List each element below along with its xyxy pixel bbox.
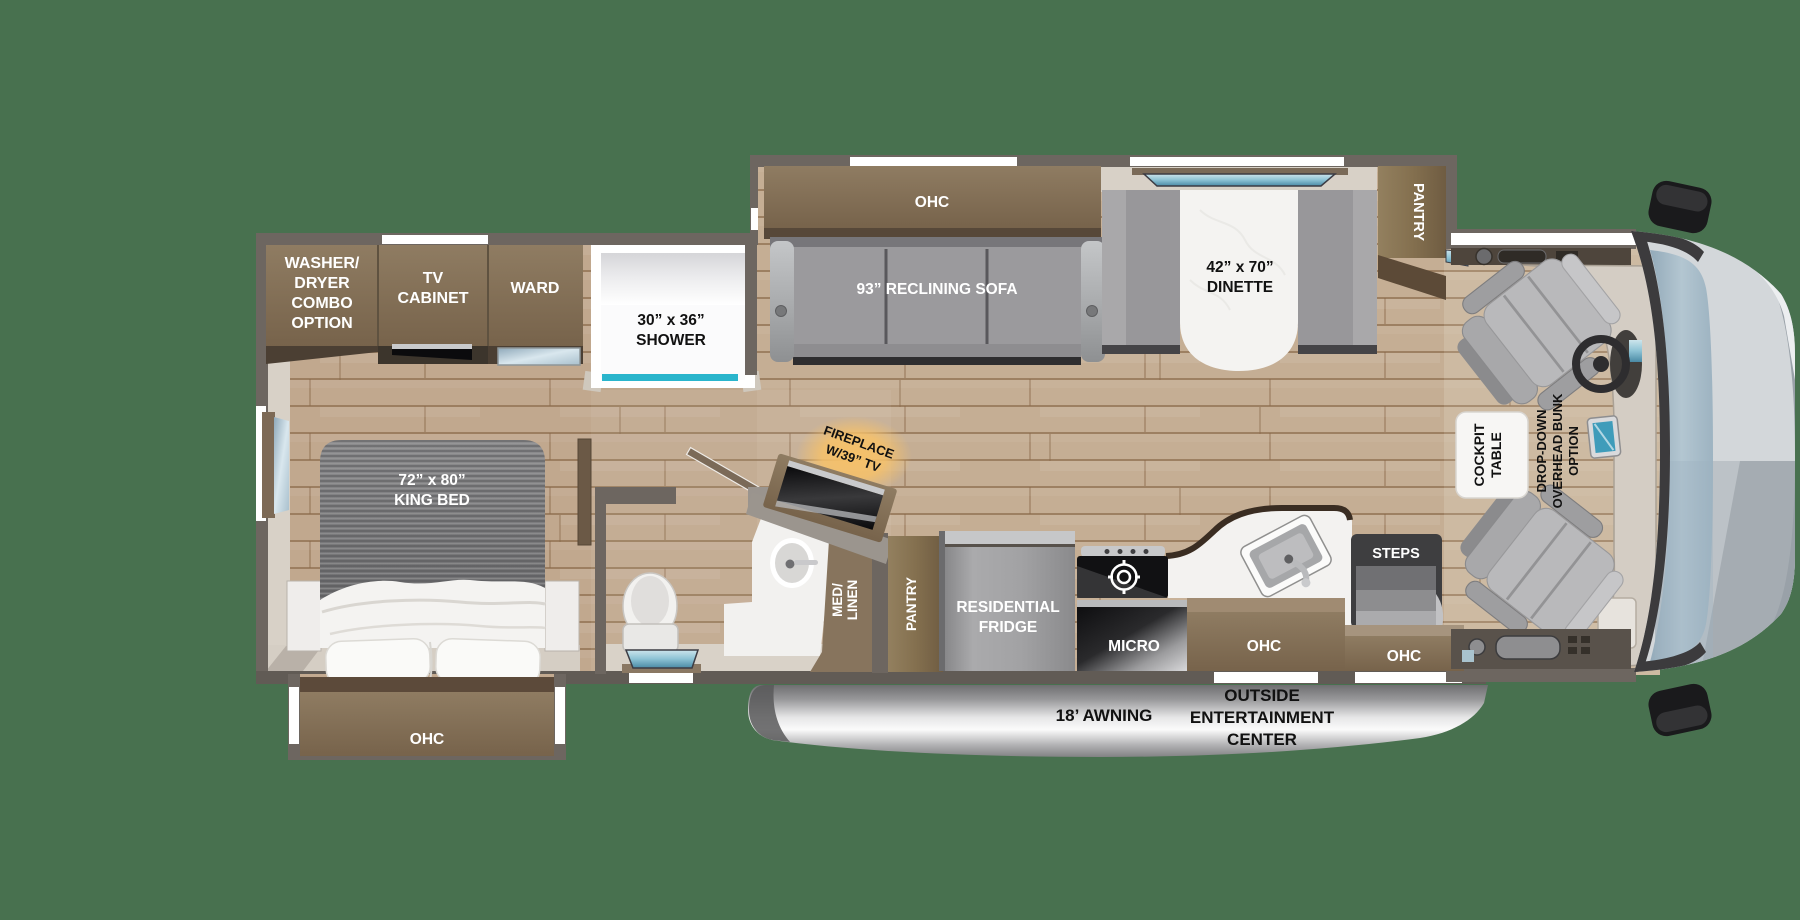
svg-text:KING BED: KING BED — [394, 492, 470, 509]
svg-text:OPTION: OPTION — [291, 315, 352, 332]
svg-text:COCKPITTABLE: COCKPITTABLE — [1471, 423, 1504, 486]
svg-text:DINETTE: DINETTE — [1207, 279, 1273, 296]
svg-text:STEPS: STEPS — [1372, 546, 1420, 562]
svg-text:MICRO: MICRO — [1108, 638, 1160, 655]
svg-text:OUTSIDE: OUTSIDE — [1224, 686, 1300, 705]
svg-text:PANTRY: PANTRY — [1410, 183, 1426, 241]
svg-text:18’ AWNING: 18’ AWNING — [1056, 706, 1153, 725]
svg-text:OHC: OHC — [1247, 638, 1281, 655]
svg-text:TV: TV — [423, 270, 444, 287]
svg-text:ENTERTAINMENT: ENTERTAINMENT — [1190, 708, 1335, 727]
svg-text:WARD: WARD — [511, 280, 560, 297]
svg-text:OHC: OHC — [410, 731, 444, 748]
svg-text:MED/LINEN: MED/LINEN — [830, 580, 860, 621]
svg-text:FRIDGE: FRIDGE — [979, 619, 1038, 636]
svg-text:30” x 36”: 30” x 36” — [637, 312, 704, 329]
svg-text:SHOWER: SHOWER — [636, 332, 706, 349]
svg-text:COMBO: COMBO — [291, 295, 352, 312]
svg-text:PANTRY: PANTRY — [904, 577, 919, 631]
svg-text:CABINET: CABINET — [397, 290, 468, 307]
svg-text:OHC: OHC — [1387, 648, 1421, 665]
svg-text:93” RECLINING SOFA: 93” RECLINING SOFA — [856, 281, 1017, 298]
svg-text:DRYER: DRYER — [294, 275, 350, 292]
svg-text:CENTER: CENTER — [1227, 730, 1297, 749]
svg-text:OHC: OHC — [915, 194, 949, 211]
svg-text:42” x 70”: 42” x 70” — [1206, 259, 1273, 276]
svg-text:RESIDENTIAL: RESIDENTIAL — [956, 599, 1059, 616]
svg-text:WASHER/: WASHER/ — [285, 255, 360, 272]
svg-text:72” x 80”: 72” x 80” — [398, 472, 465, 489]
